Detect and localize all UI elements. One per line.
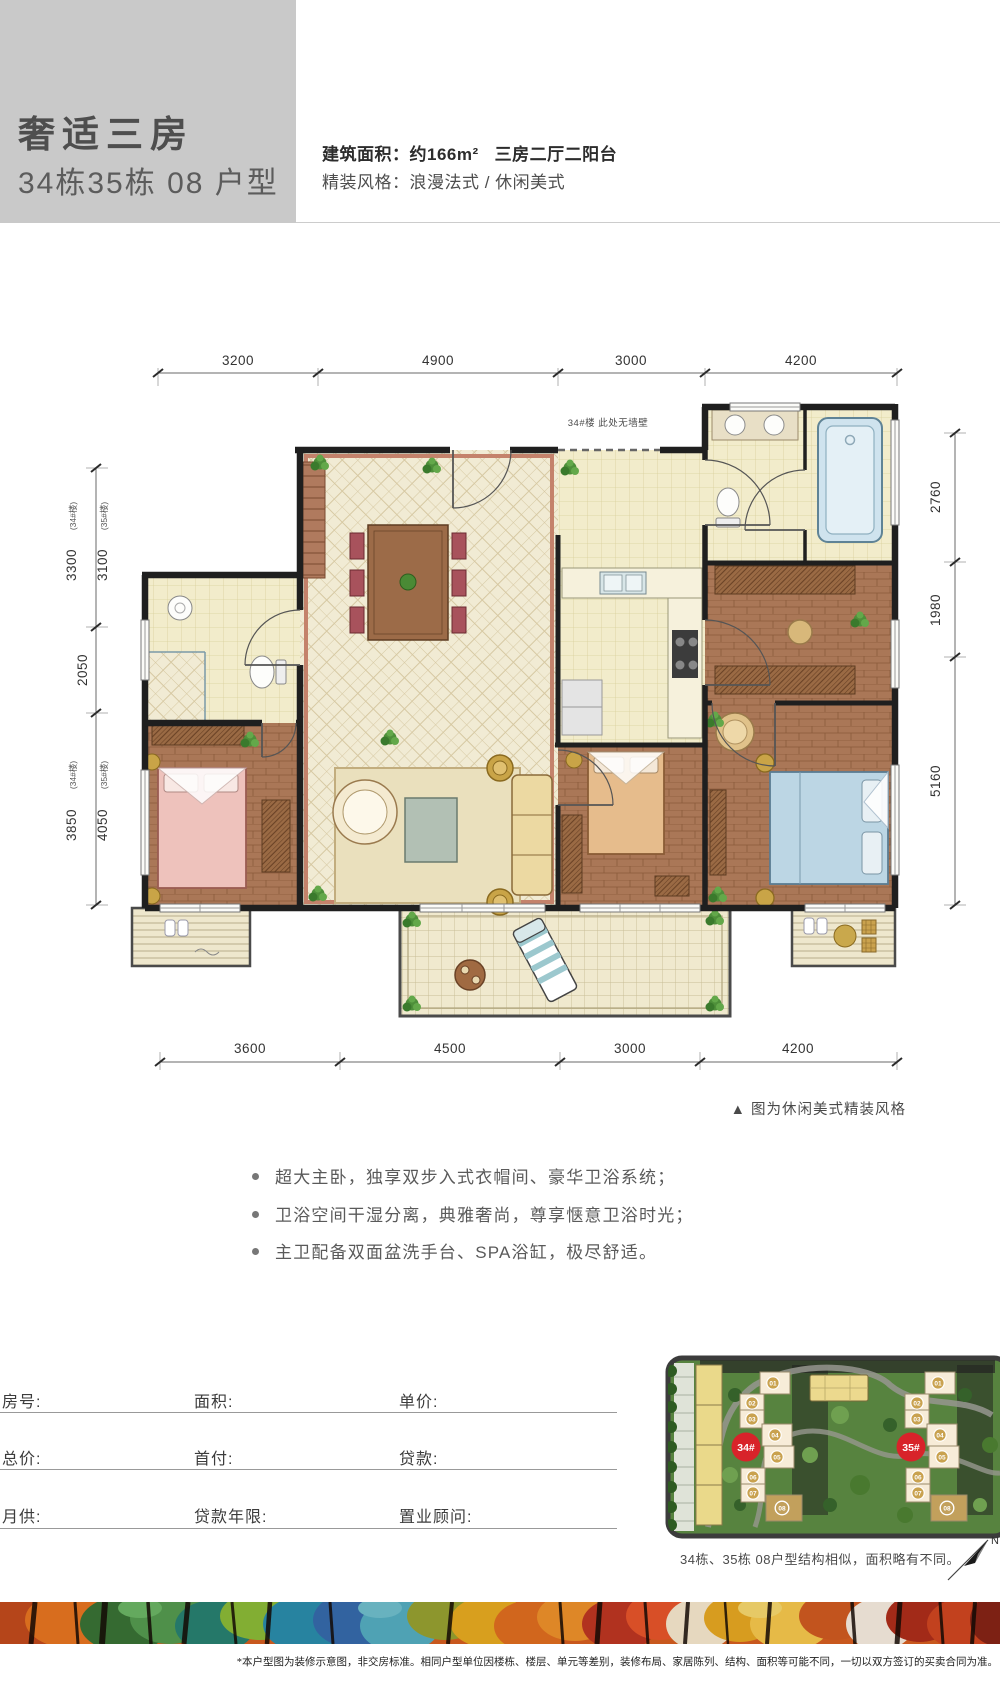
svg-text:03: 03 bbox=[913, 1416, 921, 1423]
bullet-icon bbox=[252, 1211, 259, 1218]
page: 奢适三房 34栋35栋 08 户型 建筑面积：约166m²三房二厅二阳台 精装风… bbox=[0, 0, 1000, 1686]
svg-text:02: 02 bbox=[748, 1400, 756, 1407]
header-divider bbox=[296, 222, 1000, 223]
bullet-icon bbox=[252, 1173, 259, 1180]
svg-text:07: 07 bbox=[749, 1490, 757, 1497]
slipper-icon bbox=[804, 918, 814, 934]
svg-text:3200: 3200 bbox=[222, 353, 254, 368]
svg-text:06: 06 bbox=[914, 1474, 922, 1481]
svg-text:4200: 4200 bbox=[782, 1041, 814, 1056]
form-label-area: 面积: bbox=[194, 1388, 233, 1412]
feature-text: 超大主卧，独享双步入式衣帽间、豪华卫浴系统； bbox=[275, 1168, 675, 1187]
svg-text:(35#楼): (35#楼) bbox=[99, 761, 109, 790]
floor-plan: 3200 4900 3000 4200 3600 4500 3000 4200 … bbox=[0, 320, 1000, 1110]
toilet bbox=[717, 488, 739, 516]
entry-cabinet bbox=[303, 462, 325, 578]
svg-text:1980: 1980 bbox=[928, 594, 943, 626]
svg-text:05: 05 bbox=[938, 1454, 946, 1461]
svg-text:2760: 2760 bbox=[928, 481, 943, 513]
wardrobe3 bbox=[262, 800, 290, 872]
centerpiece-plant bbox=[400, 574, 416, 590]
side-table bbox=[455, 960, 485, 990]
svg-text:05: 05 bbox=[773, 1454, 781, 1461]
site-map: 01 02 03 04 05 06 07 08 01 02 03 04 05 0… bbox=[660, 1355, 1000, 1540]
svg-text:01: 01 bbox=[934, 1380, 942, 1387]
feature-item: 主卫配备双面盆洗手台、SPA浴缸，极尽舒适。 bbox=[252, 1238, 772, 1263]
bullet-icon bbox=[252, 1248, 259, 1255]
svg-text:4900: 4900 bbox=[422, 353, 454, 368]
wardrobe bbox=[715, 666, 855, 694]
disclaimer-text: *本户型图为装修示意图，非交房标准。相同户型单位因楼栋、楼层、单元等差别，装修布… bbox=[0, 1654, 998, 1669]
sitemap-caption: 34栋、35栋 08户型结构相似，面积略有不同。 bbox=[648, 1549, 960, 1568]
svg-text:03: 03 bbox=[748, 1416, 756, 1423]
slipper-icon bbox=[165, 920, 175, 936]
dimension-left: 3300 (34#楼) 3100 (35#楼) 2050 3850 (34#楼)… bbox=[64, 464, 110, 909]
form-label-total: 总价: bbox=[2, 1445, 41, 1469]
svg-text:06: 06 bbox=[749, 1474, 757, 1481]
style-label: 精装风格：浪漫法式 / 休闲美式 bbox=[322, 168, 565, 193]
page-title: 奢适三房 bbox=[18, 104, 194, 158]
slipper-icon bbox=[178, 920, 188, 936]
dresser bbox=[655, 876, 689, 896]
toilet2 bbox=[250, 656, 274, 688]
building-34-badge: 34# bbox=[732, 1433, 761, 1462]
no-wall-note: 34#楼 此处无墙壁 bbox=[568, 417, 649, 429]
wardrobe bbox=[715, 566, 855, 594]
svg-text:35#: 35# bbox=[902, 1442, 920, 1454]
art-strip bbox=[0, 1602, 1000, 1644]
form-label-downpayment: 首付: bbox=[194, 1445, 233, 1469]
rooms-label: 三房二厅二阳台 bbox=[495, 145, 618, 164]
svg-text:2050: 2050 bbox=[75, 654, 90, 686]
coffee-table bbox=[405, 798, 457, 862]
form-line bbox=[0, 1412, 617, 1413]
form-label-loan: 贷款: bbox=[399, 1445, 438, 1469]
balcony-right bbox=[792, 908, 895, 966]
svg-text:07: 07 bbox=[914, 1490, 922, 1497]
svg-text:3000: 3000 bbox=[615, 353, 647, 368]
feature-text: 卫浴空间干湿分离，典雅奢尚，尊享惬意卫浴时光； bbox=[275, 1206, 694, 1225]
form-label-consultant: 置业顾问: bbox=[399, 1503, 472, 1527]
svg-text:34#: 34# bbox=[737, 1442, 755, 1454]
feature-item: 卫浴空间干湿分离，典雅奢尚，尊享惬意卫浴时光； bbox=[252, 1201, 772, 1226]
svg-text:08: 08 bbox=[943, 1506, 951, 1513]
svg-text:4050: 4050 bbox=[95, 809, 110, 841]
stove bbox=[672, 630, 698, 678]
compass-icon: N bbox=[942, 1530, 1000, 1588]
svg-text:(34#楼): (34#楼) bbox=[68, 502, 78, 531]
basket bbox=[862, 920, 876, 934]
svg-text:3000: 3000 bbox=[614, 1041, 646, 1056]
round-table bbox=[834, 925, 856, 947]
feature-item: 超大主卧，独享双步入式衣帽间、豪华卫浴系统； bbox=[252, 1163, 772, 1188]
svg-text:3600: 3600 bbox=[234, 1041, 266, 1056]
svg-text:04: 04 bbox=[936, 1432, 944, 1439]
svg-text:4200: 4200 bbox=[785, 353, 817, 368]
sink bbox=[725, 415, 745, 435]
sofa bbox=[512, 775, 552, 895]
nightstand bbox=[756, 754, 774, 772]
svg-text:04: 04 bbox=[771, 1432, 779, 1439]
wardrobe2 bbox=[562, 815, 582, 893]
balcony-center bbox=[400, 908, 730, 1016]
svg-text:5160: 5160 bbox=[928, 765, 943, 797]
svg-text:(34#楼): (34#楼) bbox=[68, 761, 78, 790]
dimension-bottom: 3600 4500 3000 4200 bbox=[155, 1041, 902, 1070]
pillow bbox=[862, 832, 882, 874]
form-label-loanterm: 贷款年限: bbox=[194, 1503, 267, 1527]
form-label-room: 房号: bbox=[2, 1388, 41, 1412]
sink bbox=[764, 415, 784, 435]
svg-text:01: 01 bbox=[769, 1380, 777, 1387]
dimension-right: 2760 1980 5160 bbox=[928, 429, 966, 909]
plan-style-caption: ▲ 图为休闲美式精装风格 bbox=[600, 1098, 906, 1119]
slipper-icon bbox=[817, 918, 827, 934]
area-label: 建筑面积：约166m² bbox=[322, 145, 479, 164]
tv-cabinet bbox=[710, 790, 726, 875]
svg-text:N: N bbox=[991, 1535, 999, 1547]
form-line bbox=[0, 1469, 617, 1470]
building-35-badge: 35# bbox=[897, 1433, 926, 1462]
basket bbox=[862, 938, 876, 952]
nightstand bbox=[756, 889, 774, 907]
form-label-unitprice: 单价: bbox=[399, 1388, 438, 1412]
svg-text:08: 08 bbox=[778, 1506, 786, 1513]
balcony-left bbox=[132, 908, 250, 966]
header-area-line: 建筑面积：约166m²三房二厅二阳台 bbox=[322, 140, 617, 165]
dining-set bbox=[350, 525, 466, 640]
svg-text:3100: 3100 bbox=[95, 549, 110, 581]
svg-text:(35#楼): (35#楼) bbox=[99, 502, 109, 531]
svg-text:3300: 3300 bbox=[64, 549, 79, 581]
svg-text:4500: 4500 bbox=[434, 1041, 466, 1056]
svg-text:3850: 3850 bbox=[64, 809, 79, 841]
shower-floor bbox=[145, 652, 205, 720]
dimension-top: 3200 4900 3000 4200 bbox=[153, 353, 902, 386]
pedestal-sink bbox=[168, 596, 192, 620]
form-label-monthly: 月供: bbox=[2, 1503, 41, 1527]
feature-text: 主卫配备双面盆洗手台、SPA浴缸，极尽舒适。 bbox=[275, 1243, 657, 1262]
form-line bbox=[0, 1528, 617, 1529]
ottoman bbox=[788, 620, 812, 644]
page-subtitle: 34栋35栋 08 户型 bbox=[18, 158, 279, 202]
living-set bbox=[333, 755, 552, 915]
bookshelf bbox=[152, 725, 244, 745]
svg-text:02: 02 bbox=[913, 1400, 921, 1407]
